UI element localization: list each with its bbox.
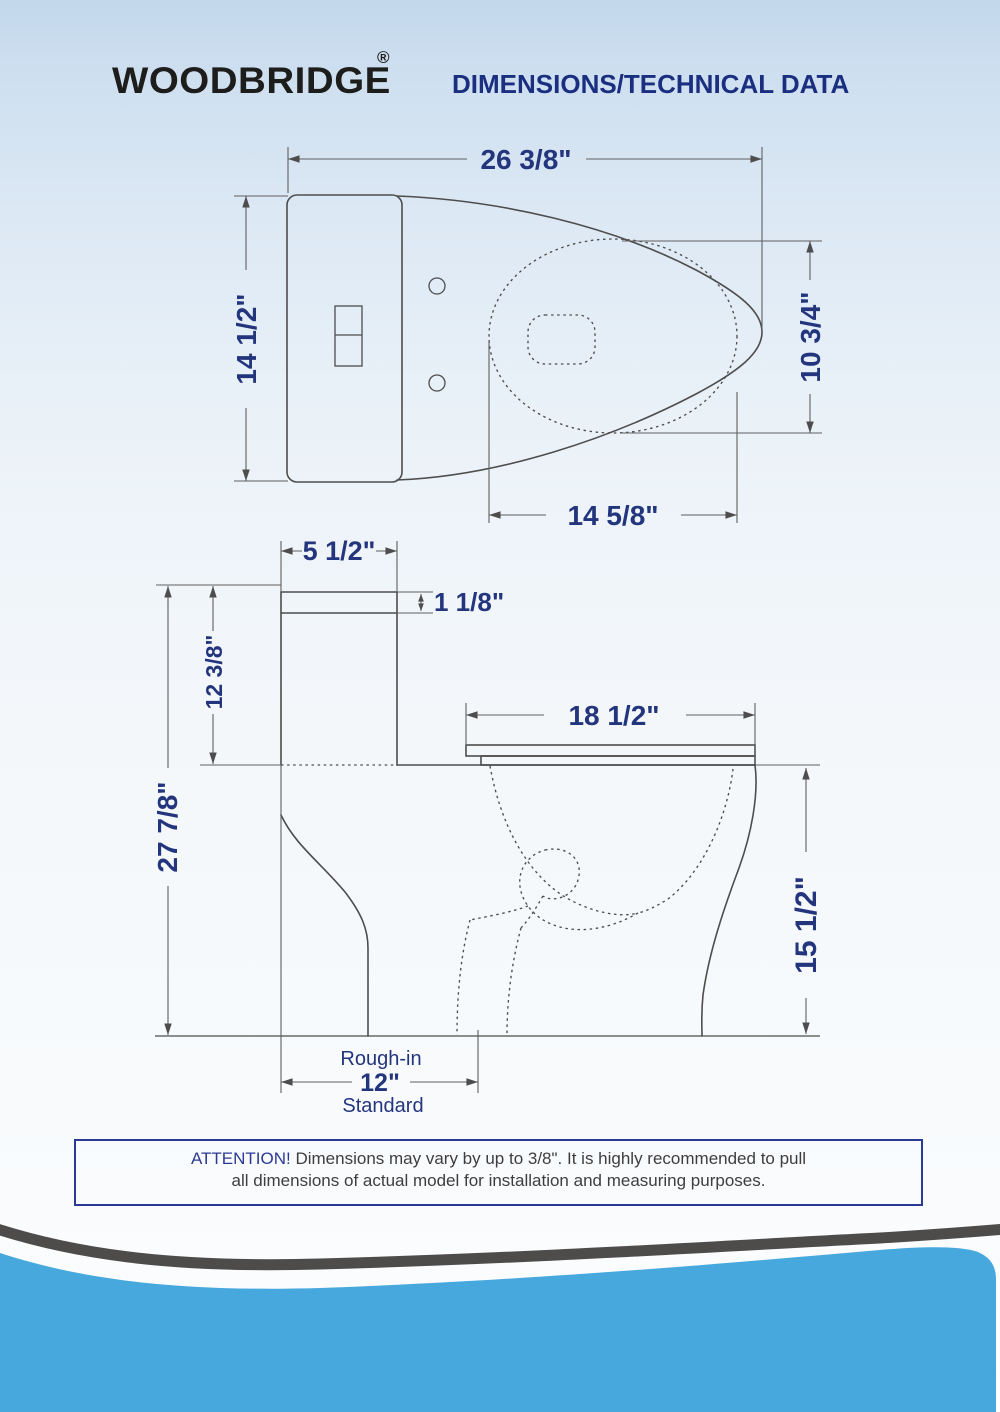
seat-ring-side (481, 756, 755, 765)
lid-outline-top (397, 196, 762, 480)
dim-label-tank-height: 12 3/8" (201, 635, 227, 710)
seat-bolt-hole-top (429, 278, 445, 294)
dim-bowl-opening-length: 14 5/8" (489, 340, 737, 531)
bowl-rear-profile (281, 815, 368, 1036)
dim-label-rim-height: 15 1/2" (790, 876, 823, 974)
dim-label-seat-length: 18 1/2" (568, 700, 659, 731)
attention-heading: ATTENTION! (191, 1149, 291, 1168)
dim-rough-in: Rough-in 12" Standard (281, 765, 478, 1117)
dim-tank-height: 12 3/8" (156, 585, 281, 765)
attention-box: ATTENTION! Dimensions may vary by up to … (74, 1139, 923, 1206)
dim-seat-length: 18 1/2" (466, 700, 755, 764)
dim-label-overall-height: 27 7/8" (152, 781, 183, 872)
tank-outline-top (287, 195, 402, 482)
trapway-swirl-outer-dotted (520, 850, 638, 930)
wave-blue-fill (0, 1247, 996, 1412)
dim-label-overall-length: 26 3/8" (480, 144, 571, 175)
page: WOODBRIDGE ® DIMENSIONS/TECHNICAL DATA (0, 0, 1000, 1412)
bowl-front-profile (702, 765, 756, 1036)
dim-bowl-opening-width: 10 3/4" (622, 241, 826, 433)
dim-overall-length: 26 3/8" (288, 144, 762, 331)
seat-bolt-hole-bottom (429, 375, 445, 391)
rough-in-note: Standard (342, 1095, 423, 1117)
outlet-right-dotted (507, 928, 521, 1035)
trapway-funnel-left-dotted (490, 766, 638, 915)
side-view-diagram: 5 1/2" 1 1/8" 12 3/8" 27 7/8" (152, 536, 823, 1117)
dim-overall-height: 27 7/8" (152, 586, 183, 1035)
dim-label-lid-thickness: 1 1/8" (434, 587, 504, 617)
dim-label-bowl-opening-length: 14 5/8" (567, 500, 658, 531)
tank-outline-side (281, 592, 397, 765)
trapway-swirl-inner-dotted (543, 849, 579, 899)
water-surface-dotted (528, 315, 595, 364)
rough-in-value: 12" (360, 1069, 400, 1097)
attention-text-1: Dimensions may vary by up to 3/8". It is… (291, 1149, 806, 1168)
dim-label-bowl-opening-width: 10 3/4" (795, 291, 826, 382)
trapway-funnel-right-dotted (638, 769, 733, 913)
seat-opening-dotted (489, 239, 737, 433)
dim-label-tank-lid-depth: 5 1/2" (303, 536, 376, 566)
attention-text-2: all dimensions of actual model for insta… (76, 1170, 921, 1192)
outlet-left-dotted (457, 920, 470, 1035)
dim-label-overall-width: 14 1/2" (231, 293, 262, 384)
trapway-link-left-dotted (470, 906, 528, 920)
dim-lid-thickness: 1 1/8" (397, 587, 504, 617)
dim-overall-width: 14 1/2" (231, 196, 288, 481)
top-view-diagram: 26 3/8" 14 1/2" 10 3/4" (231, 144, 826, 531)
seat-lid-side (466, 745, 755, 756)
trapway-link-right-dotted (521, 896, 543, 928)
dim-rim-height: 15 1/2" (790, 768, 823, 1034)
flush-button-outline (335, 306, 362, 366)
dim-tank-lid-depth: 5 1/2" (281, 536, 397, 592)
attention-line1: ATTENTION! Dimensions may vary by up to … (76, 1148, 921, 1170)
footer-wave (0, 1228, 1000, 1412)
rough-in-label: Rough-in (340, 1048, 421, 1070)
